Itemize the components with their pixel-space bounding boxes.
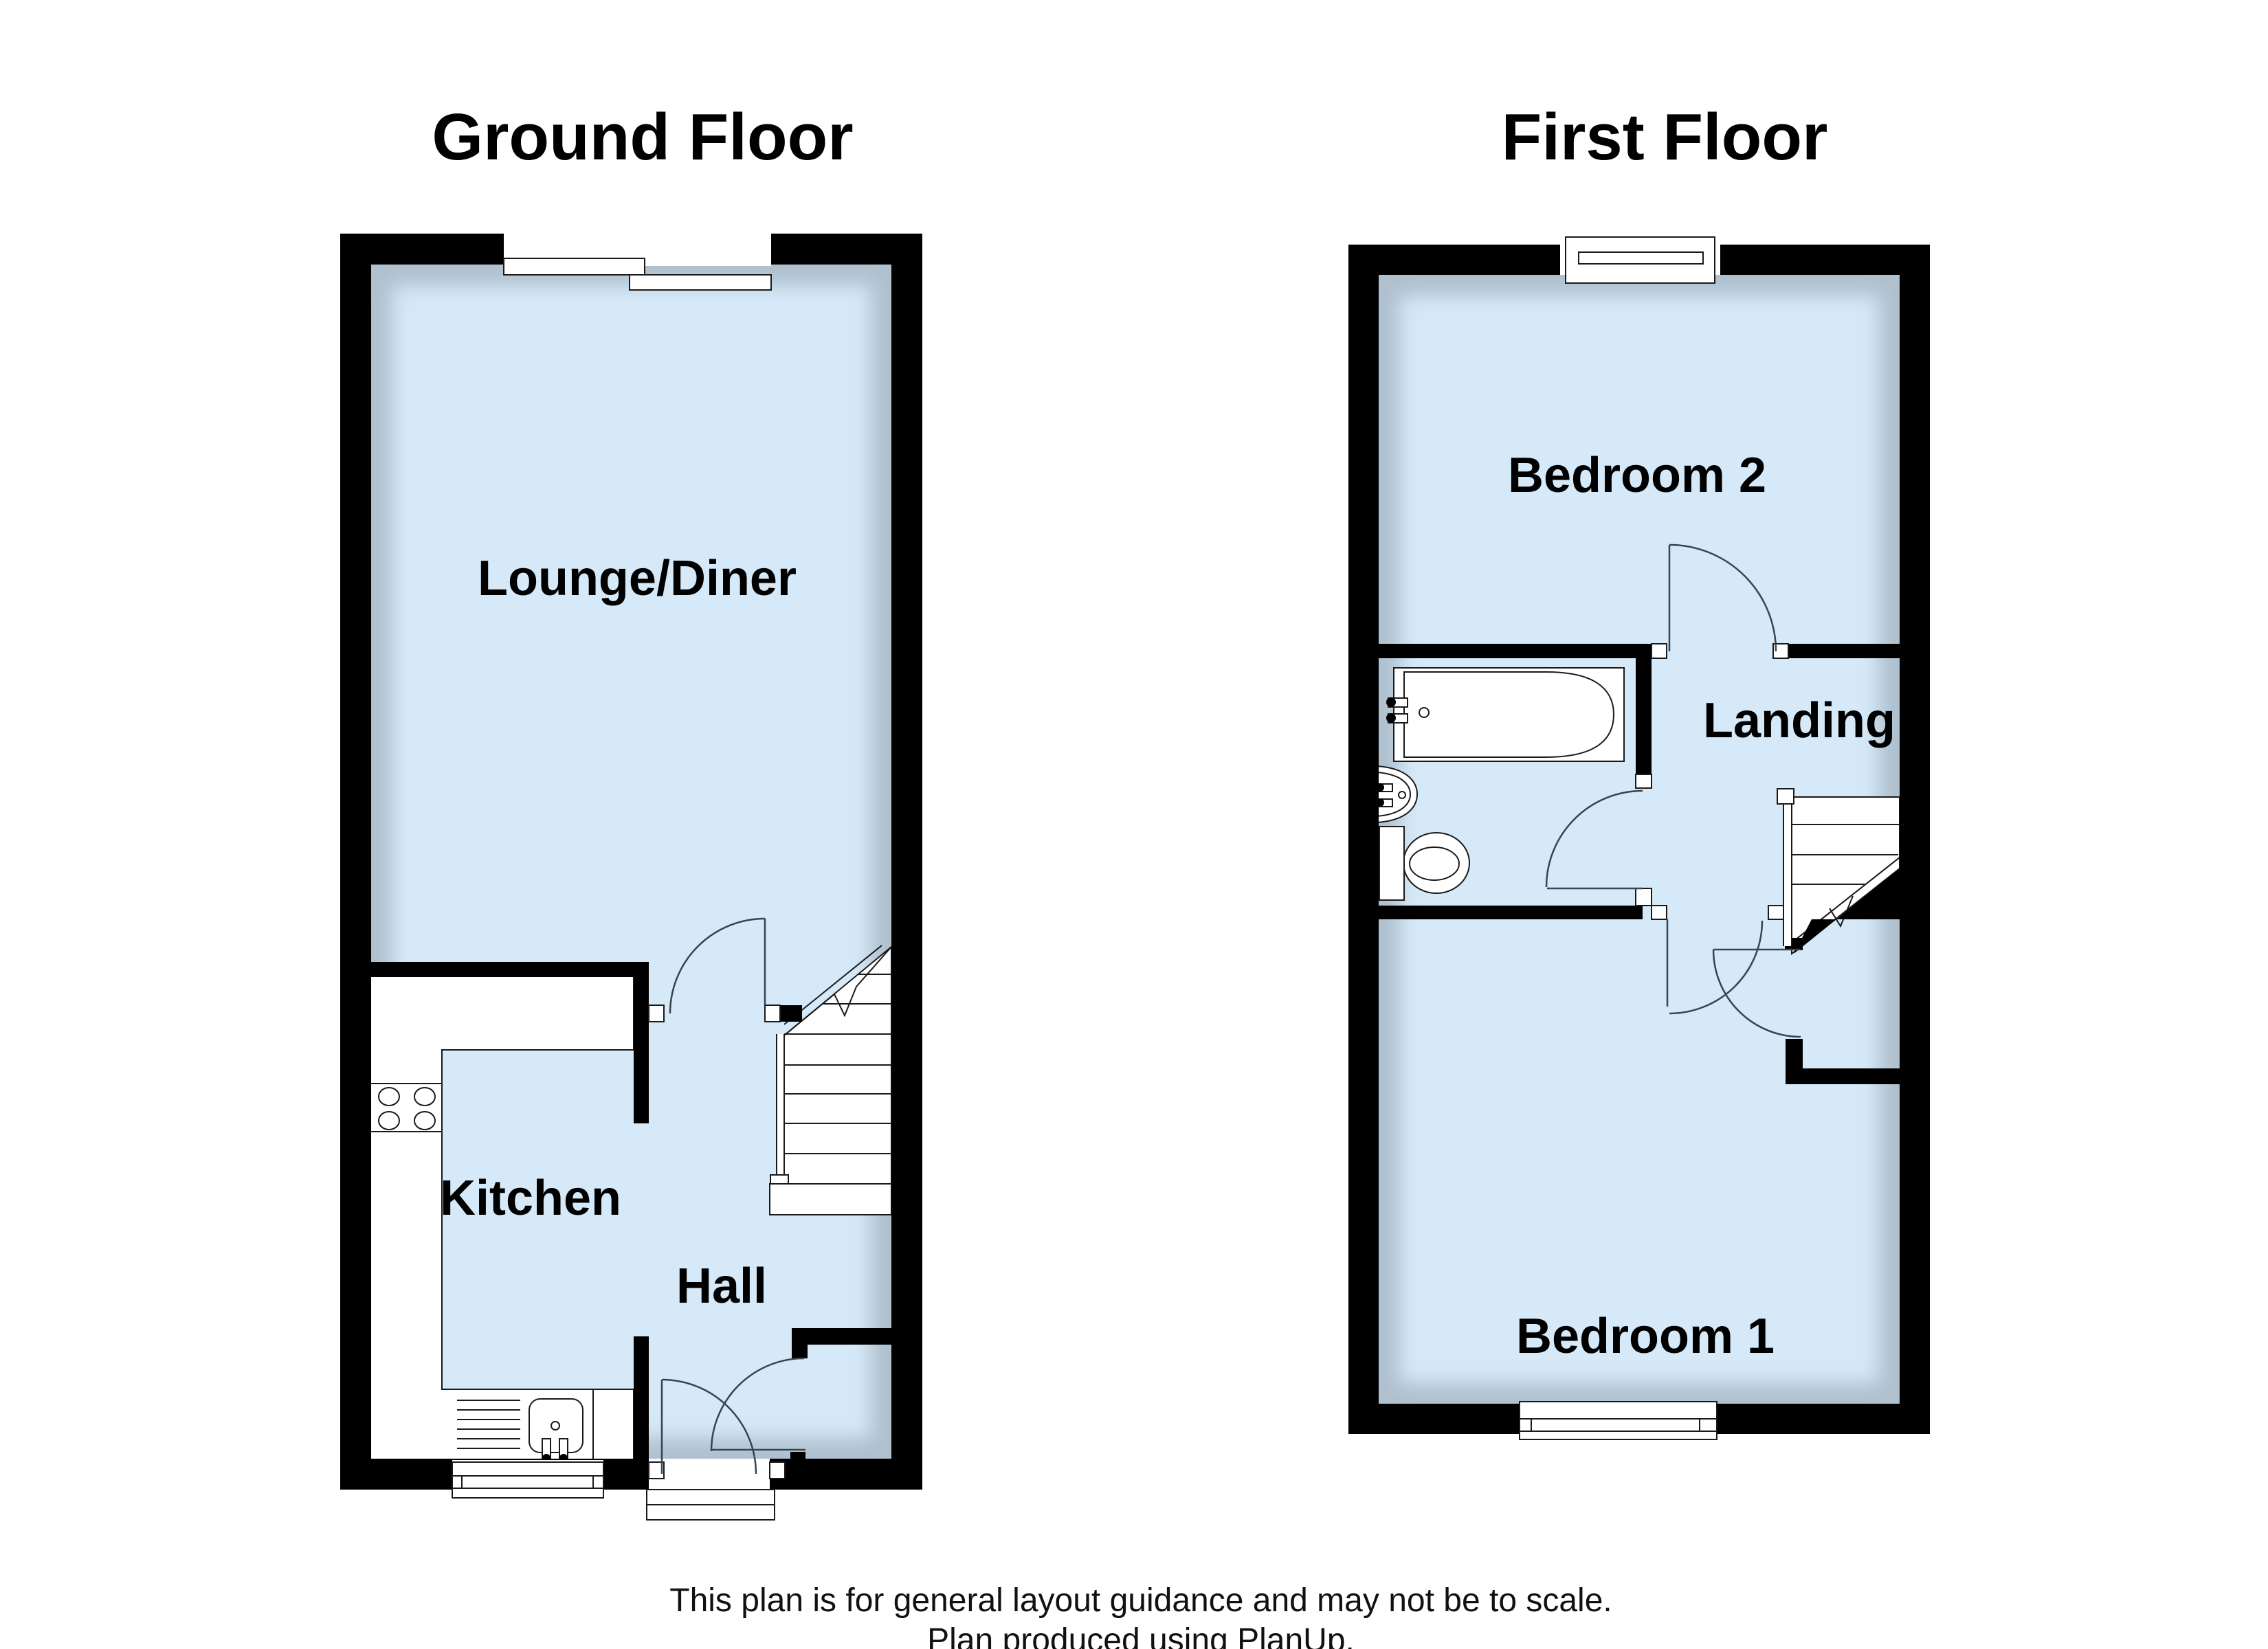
door-jamb (1636, 888, 1652, 906)
window-icon (452, 1460, 603, 1498)
hall-label: Hall (676, 1259, 767, 1314)
lounge-kitchen-wall (340, 962, 649, 977)
window-icon (1520, 1402, 1717, 1439)
window-icon (1560, 237, 1720, 283)
bathroom-landing-wall (1636, 658, 1652, 774)
stair-landing (770, 1184, 891, 1215)
kitchen-hall-wall-lower (634, 1336, 649, 1474)
floorplan-page: Lounge/Diner Kitchen Hall (0, 0, 2268, 1649)
lounge-diner-label: Lounge/Diner (478, 551, 797, 606)
door-jamb (1768, 906, 1783, 919)
bedroom1-label: Bedroom 1 (1516, 1309, 1775, 1364)
bedroom2-wall-right (1788, 644, 1930, 658)
door-jamb (1652, 644, 1667, 658)
producer-line: Plan produced using PlanUp. (927, 1622, 1355, 1649)
bedroom2-label: Bedroom 2 (1508, 448, 1766, 503)
floorplan-canvas: Lounge/Diner Kitchen Hall (0, 0, 2268, 1649)
ground-floor-plan: Lounge/Diner Kitchen Hall (340, 232, 922, 1520)
ground-floor-interior (371, 265, 891, 1459)
kitchen-label: Kitchen (440, 1171, 621, 1226)
first-floor-title: First Floor (1502, 100, 1828, 174)
kitchen-hall-wall-upper (634, 962, 649, 1123)
bath-icon (1386, 668, 1624, 761)
newel-post (1777, 789, 1794, 804)
lounge-hall-wall-stub (780, 1005, 802, 1022)
bedroom1-nook-wall (1786, 1039, 1803, 1084)
bathroom-bedroom1-wall (1348, 906, 1643, 919)
ground-floor-title: Ground Floor (432, 100, 853, 174)
disclaimer-line: This plan is for general layout guidance… (669, 1582, 1612, 1619)
bedroom2-wall-left (1348, 644, 1652, 658)
first-floor-plan: Bedroom 2 Landing Bedroom 1 (1348, 237, 1930, 1439)
door-jamb (1652, 906, 1667, 919)
door-jamb (1636, 774, 1652, 788)
hob-icon (370, 1084, 442, 1132)
landing-label: Landing (1703, 693, 1895, 748)
